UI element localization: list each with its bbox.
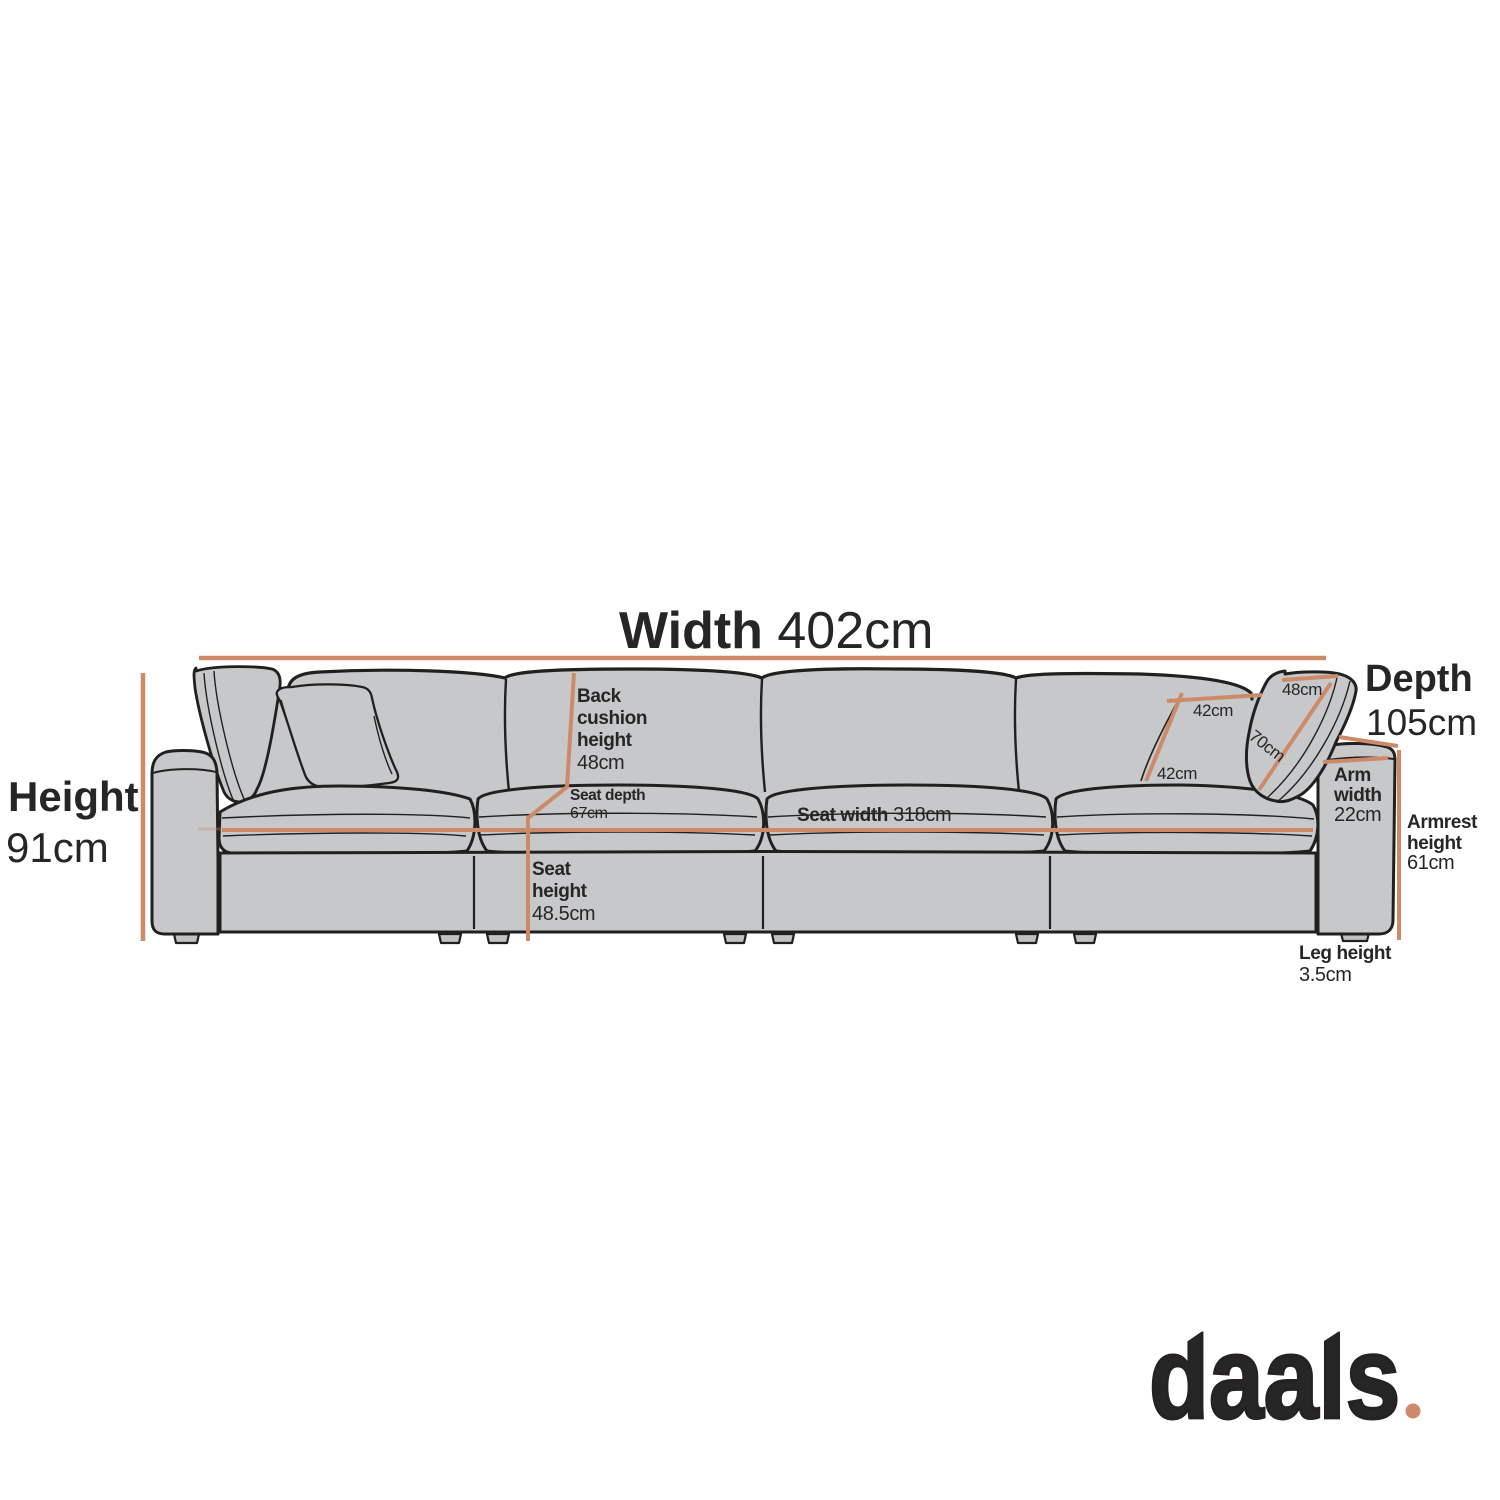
svg-text:22cm: 22cm — [1334, 804, 1381, 826]
svg-text:91cm: 91cm — [6, 824, 109, 871]
svg-text:Back: Back — [577, 686, 622, 707]
svg-text:Armrest: Armrest — [1407, 812, 1478, 833]
svg-text:61cm: 61cm — [1407, 852, 1454, 874]
svg-text:height: height — [532, 881, 588, 902]
svg-text:48cm: 48cm — [1282, 680, 1322, 699]
svg-text:Seat: Seat — [532, 859, 572, 880]
svg-text:Seat width 318cm: Seat width 318cm — [797, 804, 951, 826]
svg-text:width: width — [1333, 785, 1382, 806]
svg-text:105cm: 105cm — [1366, 702, 1477, 743]
svg-text:cushion: cushion — [577, 708, 647, 729]
svg-text:Depth: Depth — [1365, 658, 1473, 700]
svg-text:48cm: 48cm — [577, 752, 624, 774]
svg-text:48.5cm: 48.5cm — [532, 903, 595, 925]
svg-text:height: height — [1407, 833, 1463, 854]
svg-text:Seat depth: Seat depth — [570, 787, 645, 804]
svg-text:42cm: 42cm — [1157, 764, 1197, 783]
svg-text:67cm: 67cm — [570, 805, 608, 822]
svg-text:42cm: 42cm — [1193, 701, 1233, 720]
svg-text:Leg height: Leg height — [1299, 943, 1392, 964]
svg-text:3.5cm: 3.5cm — [1299, 964, 1351, 986]
svg-text:Width 402cm: Width 402cm — [619, 602, 933, 660]
svg-text:Arm: Arm — [1334, 765, 1371, 786]
svg-text:Height: Height — [8, 773, 139, 820]
svg-text:height: height — [577, 730, 633, 751]
